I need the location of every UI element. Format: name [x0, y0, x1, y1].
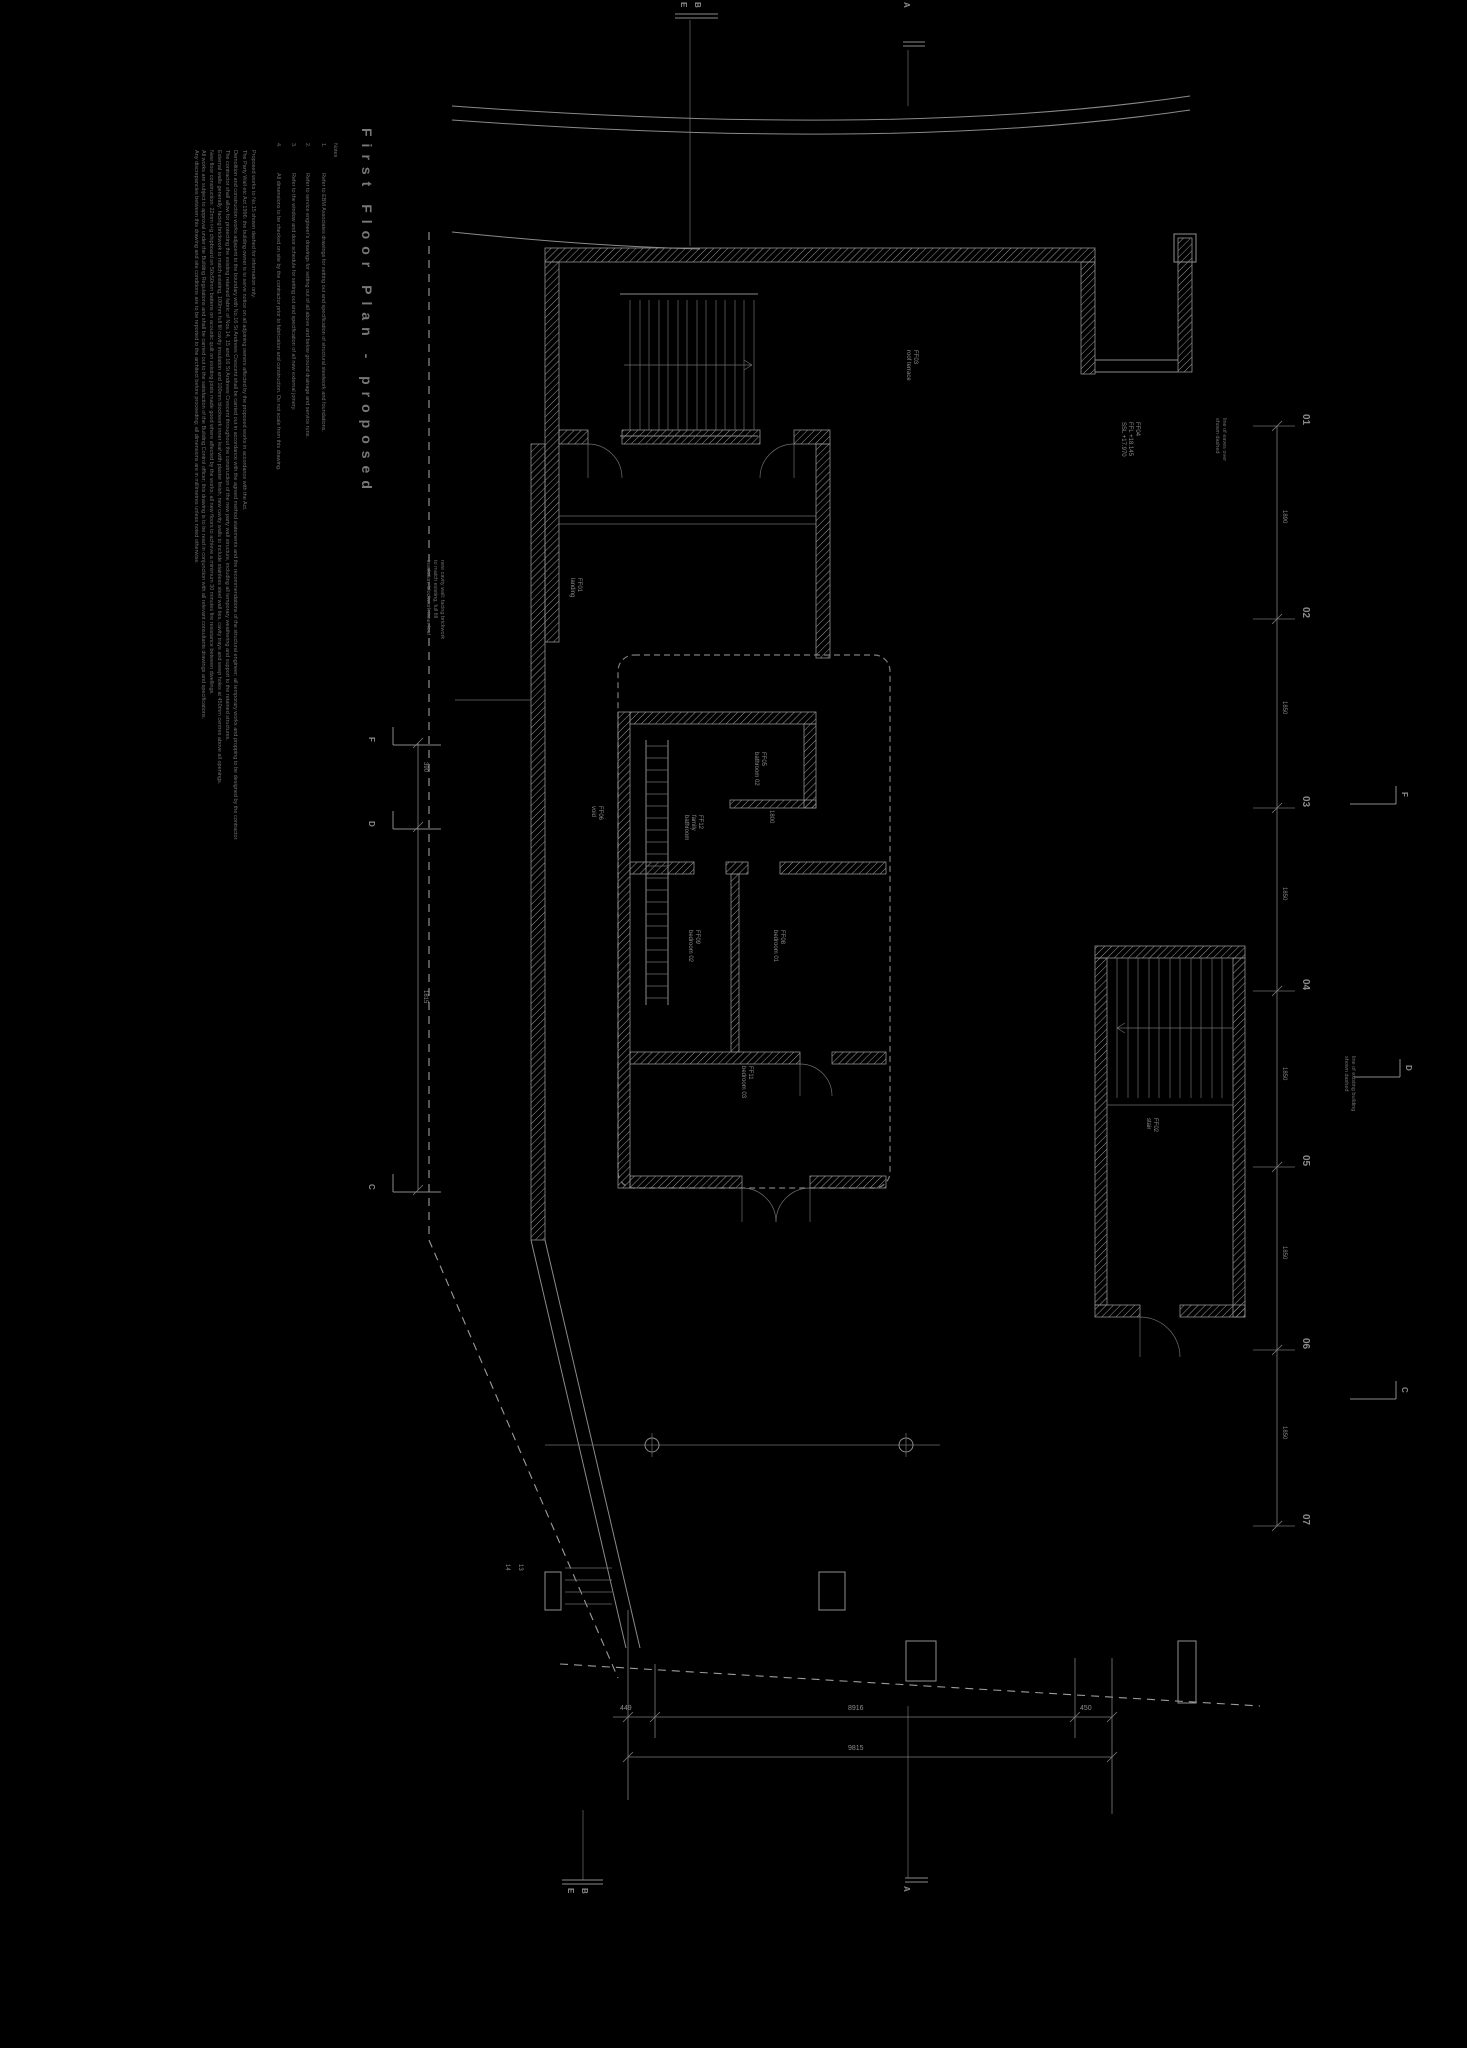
room-ff03-name: roof terrace — [905, 350, 911, 381]
room-ff11-id: FF11 — [747, 1066, 753, 1080]
room-ff06-id: FF06 — [597, 806, 603, 821]
note-paragraph-1: Proposed works to No.15 shown dashed for… — [250, 150, 256, 299]
annotation-wall-1: new cavity wall: facing brickwork — [439, 560, 445, 639]
room-ff12-name-2: bathroom — [683, 815, 689, 840]
section-letter-d-right: D — [1404, 1065, 1413, 1071]
section-letter-b-top: B — [693, 2, 702, 8]
notes-heading: Notes — [332, 143, 338, 158]
dim-right-2: 1850 — [1281, 701, 1287, 715]
dim-bottom-3: 450 — [1080, 1705, 1092, 1712]
stair-number-13: 13 — [517, 1564, 523, 1571]
dim-right-1: 1890 — [1281, 510, 1287, 524]
dim-bottom-1: 449 — [620, 1705, 632, 1712]
annotation-eaves-1: line of eaves over — [1221, 418, 1227, 461]
room-ff08-name: bedroom 01 — [772, 930, 778, 963]
section-letter-d-left: D — [367, 821, 376, 827]
dim-cluster: 1800 — [768, 810, 774, 824]
note-paragraph-3: Demolition and construction works adjace… — [232, 150, 238, 841]
title-block: First Floor Plan - proposed — [359, 128, 375, 496]
grid-row-05: 05 — [1300, 1155, 1311, 1167]
room-ff02-name: stair — [1145, 1118, 1151, 1129]
annotation-existing-2: shown dashed — [1343, 1056, 1349, 1091]
section-letter-f-right: F — [1400, 792, 1409, 797]
note-paragraph-7: All works are subject to approval under … — [200, 150, 206, 720]
dim-left-2: 1815 — [422, 990, 428, 1004]
room-labels: FF01 landing FF05 bathroom 02 FF12 famil… — [504, 350, 1158, 1571]
note-paragraph-8: Any discrepancies between this drawing a… — [193, 150, 199, 564]
note-3-text: Refer to the window and door schedule fo… — [290, 173, 296, 411]
note-1-text: Refer to EBM Associates drawings for set… — [320, 173, 326, 432]
doors — [588, 444, 1180, 1357]
section-letter-a-top: A — [902, 2, 911, 8]
room-ff09-id: FF09 — [694, 930, 700, 945]
dim-bottom-2: 8916 — [848, 1705, 864, 1712]
note-paragraph-4: The contractor shall allow for protectin… — [224, 150, 230, 741]
room-ff04-ffl: FFL +18.145 — [1127, 422, 1133, 457]
note-4-text: All dimensions to be checked on site by … — [275, 173, 281, 471]
notes-block: Notes 1. Refer to EBM Associates drawing… — [193, 143, 338, 841]
section-letter-c-right: C — [1400, 1387, 1409, 1393]
note-2-text: Refer to service engineer's drawings for… — [304, 173, 310, 438]
room-ff03-id: FF03 — [912, 350, 918, 365]
section-letter-e-bottom: E — [566, 1888, 575, 1894]
room-ff02-id: FF02 — [1152, 1118, 1158, 1133]
section-letter-f-left: F — [367, 737, 376, 742]
dim-right-3: 1850 — [1281, 887, 1287, 901]
grid-row-01: 01 — [1300, 414, 1311, 426]
grid-row-04: 04 — [1300, 979, 1311, 991]
section-letter-b-bottom: B — [580, 1888, 589, 1894]
room-ff01-name: landing — [569, 578, 575, 597]
room-ff11-name: bedroom 03 — [740, 1066, 746, 1099]
note-1-num: 1. — [320, 143, 326, 148]
drawing-sheet: E B A E B A F D C F D C — [0, 0, 1467, 2048]
note-paragraph-2: The Party Wall etc Act 1996: the buildin… — [241, 150, 247, 511]
room-ff04-ssl: SSL +17.970 — [1120, 422, 1126, 457]
grid-row-02: 02 — [1300, 607, 1311, 619]
drawing-title: First Floor Plan - proposed — [359, 128, 375, 496]
note-2-num: 2. — [304, 143, 310, 148]
annotation-eaves-2: shown dashed — [1214, 418, 1220, 453]
room-ff06-name: void — [590, 806, 596, 817]
stairs — [620, 294, 1233, 1098]
room-ff08-id: FF08 — [779, 930, 785, 945]
annotation-wall-2: to match existing, full fill — [432, 560, 438, 618]
section-letter-c-left: C — [367, 1184, 376, 1190]
note-4-num: 4. — [275, 143, 281, 148]
dim-right-6: 1850 — [1281, 1426, 1287, 1440]
annotation-existing-1: line of existing building — [1350, 1056, 1356, 1111]
grid-row-06: 06 — [1300, 1338, 1311, 1350]
stair-number-14: 14 — [504, 1564, 510, 1571]
room-ff12-id: FF12 — [697, 815, 703, 830]
room-ff09-name: bedroom 02 — [687, 930, 693, 963]
dim-left-1: 390 — [422, 762, 428, 773]
grid-labels: 01 02 03 04 05 06 07 — [1253, 414, 1311, 1526]
note-3-num: 3. — [290, 143, 296, 148]
room-ff12-name-1: family — [690, 815, 696, 831]
grid-row-07: 07 — [1300, 1514, 1311, 1526]
dim-right-5: 1850 — [1281, 1246, 1287, 1260]
room-ff01-id: FF01 — [576, 578, 582, 593]
section-letter-a-bottom: A — [902, 1886, 911, 1892]
annotation-wall-3: insulation, blockwork inner leaf — [425, 560, 431, 635]
grid-row-03: 03 — [1300, 796, 1311, 808]
room-ff05-name: bathroom 02 — [753, 752, 759, 786]
floor-plan-canvas: E B A E B A F D C F D C — [0, 0, 1467, 2048]
section-letter-e-top: E — [679, 2, 688, 8]
room-ff05-id: FF05 — [760, 752, 766, 767]
note-paragraph-6: New floor construction: 22mm t+g chipboa… — [208, 150, 214, 695]
dim-right-4: 1850 — [1281, 1067, 1287, 1081]
dim-bottom-total: 9815 — [848, 1745, 864, 1752]
room-ff04-id: FF04 — [1134, 422, 1140, 437]
note-paragraph-5: External walls generally: facing brickwo… — [216, 150, 222, 785]
